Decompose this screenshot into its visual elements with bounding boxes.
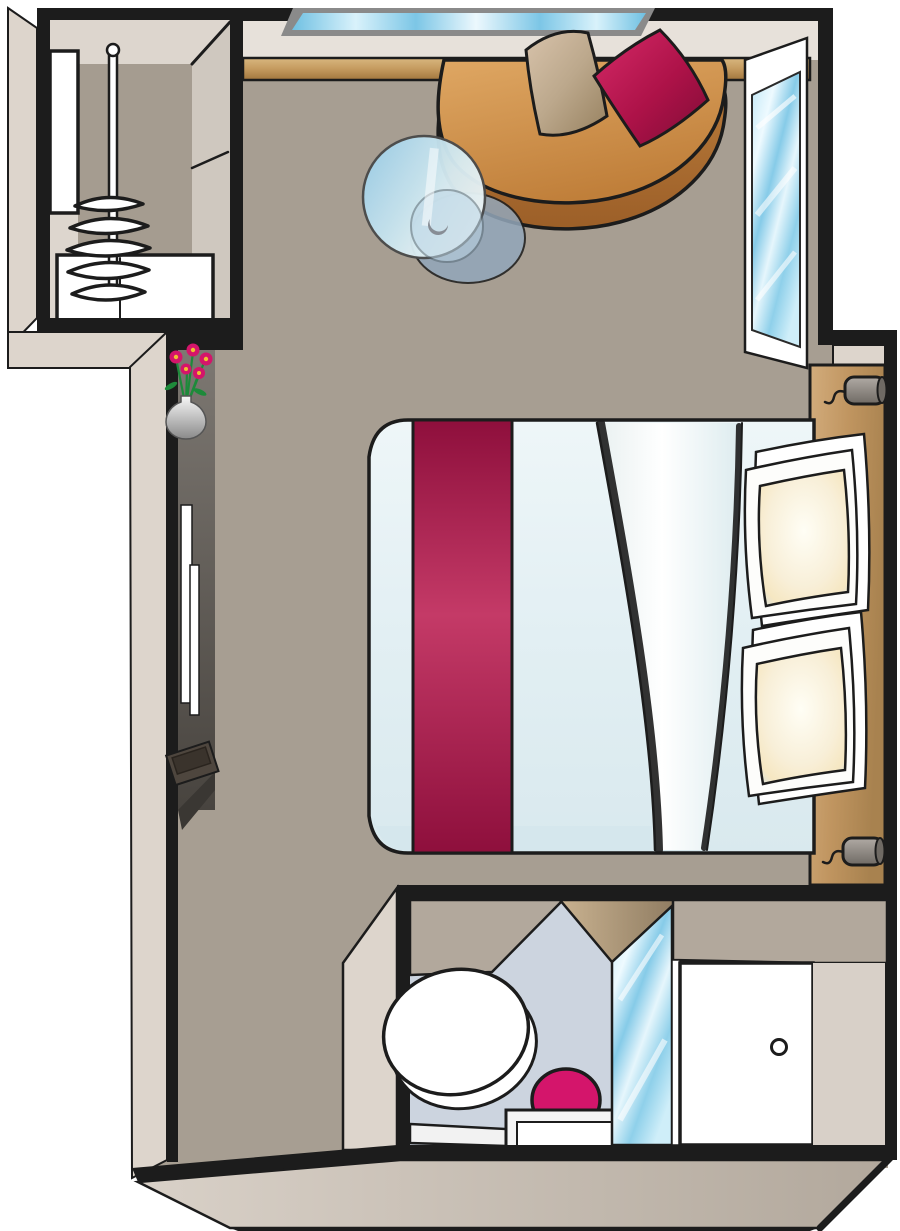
wardrobe <box>8 8 243 368</box>
top-window <box>281 8 655 36</box>
pillow-stack-bottom <box>742 612 866 804</box>
right-wall-step-line <box>818 330 897 345</box>
wardrobe-wall-right <box>230 8 243 332</box>
bed-runner <box>413 420 512 853</box>
hanging-rail <box>107 44 119 298</box>
right-wall-lower-line <box>885 345 897 1160</box>
vanity-niche-wall <box>167 318 243 350</box>
right-wall-upper-line <box>818 8 833 345</box>
wardrobe-outer-face-left <box>8 8 37 348</box>
top-window-glass <box>292 13 646 30</box>
pillow-inner <box>759 470 849 606</box>
floor-plan-canvas <box>0 0 900 1231</box>
left-wall-line <box>167 330 178 1162</box>
sconce-lamp-end <box>878 377 887 403</box>
entry-ceiling-face <box>673 900 887 963</box>
double-bed <box>369 420 869 853</box>
right-window <box>745 38 807 368</box>
wardrobe-wall-left <box>37 8 50 320</box>
bathroom-entry-block <box>343 885 887 1150</box>
door-knob <box>772 1040 787 1055</box>
wardrobe-shelf <box>50 51 78 213</box>
floor-plan-svg <box>0 0 900 1231</box>
entry-door <box>680 963 885 1145</box>
left-wall-face <box>130 332 167 1178</box>
vanity-mirror-panel <box>190 565 199 715</box>
vanity-shelf <box>410 1124 506 1146</box>
sconce-lamp-end <box>876 838 885 864</box>
entry-jamb-face <box>813 963 885 1145</box>
pillow-inner <box>756 648 846 784</box>
table-base <box>411 190 483 262</box>
door-leaf <box>680 963 813 1145</box>
pillow-stack-top <box>745 434 869 626</box>
